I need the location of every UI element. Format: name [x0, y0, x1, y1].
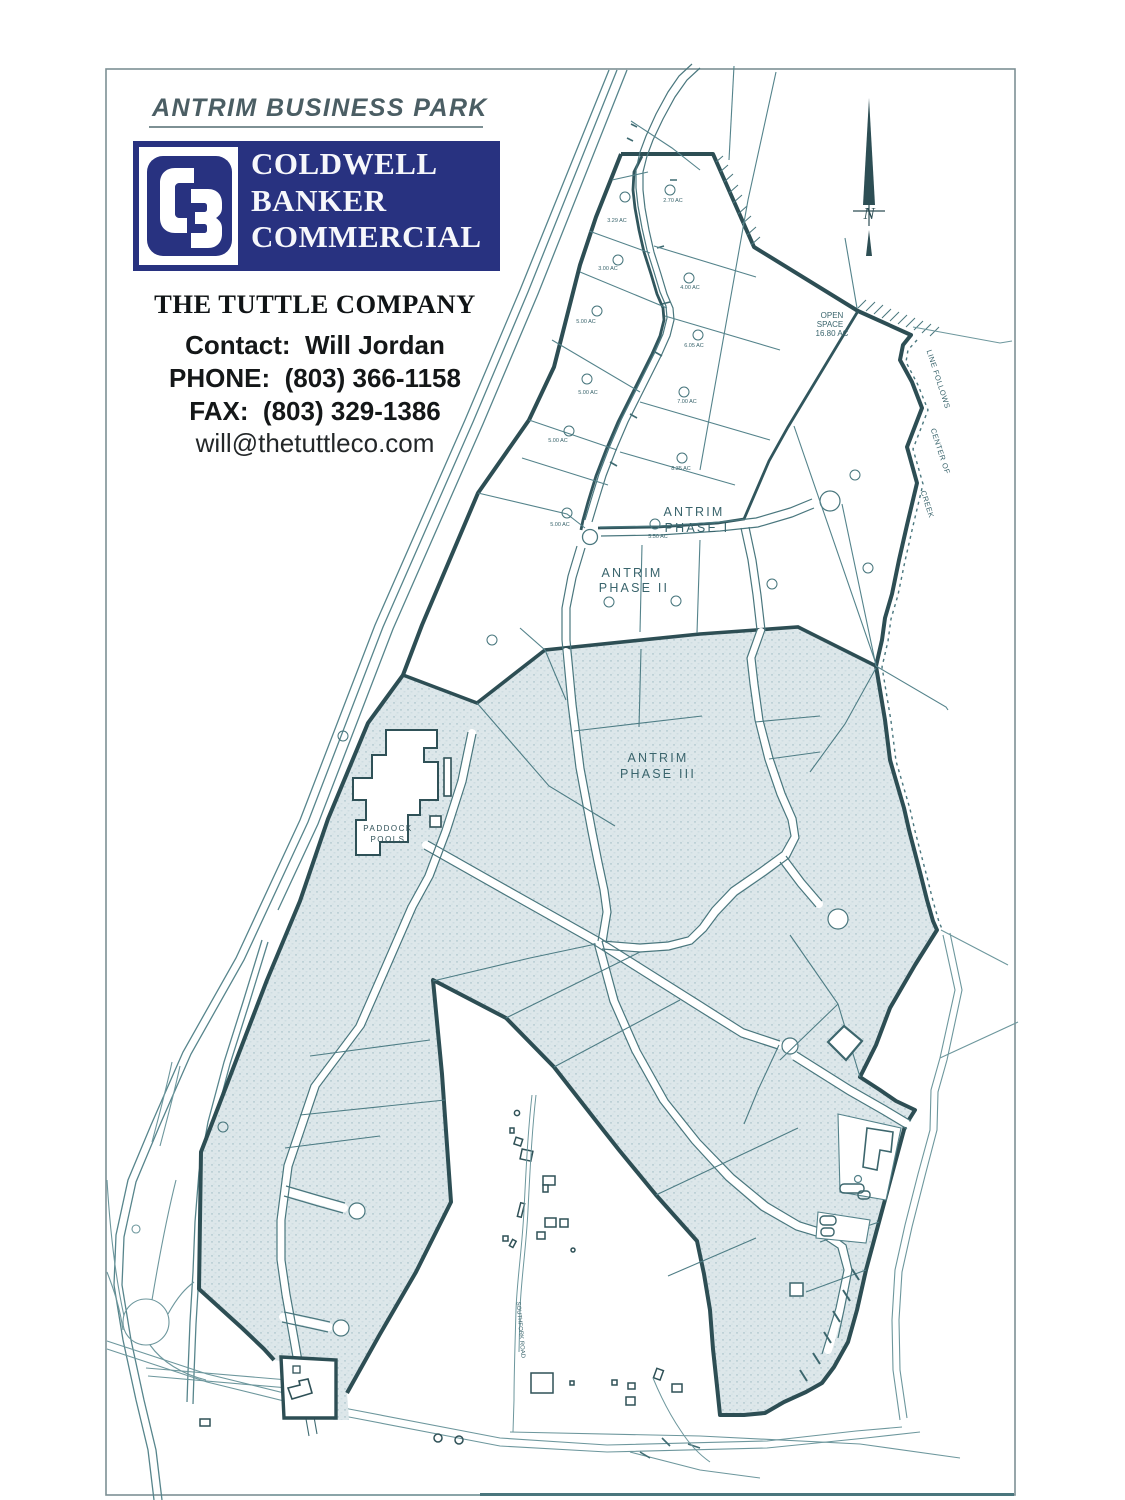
svg-text:SOUTHFORK ROAD: SOUTHFORK ROAD [515, 1301, 526, 1359]
svg-text:PHASE I: PHASE I [665, 521, 730, 535]
svg-text:6.05 AC: 6.05 AC [684, 343, 704, 349]
svg-text:PADDOCK: PADDOCK [363, 824, 412, 833]
svg-text:LINE FOLLOWS: LINE FOLLOWS [925, 349, 953, 410]
svg-text:2.70 AC: 2.70 AC [663, 198, 683, 204]
svg-text:7.00 AC: 7.00 AC [677, 399, 697, 405]
svg-text:3.29 AC: 3.29 AC [607, 218, 627, 224]
svg-text:CENTER OF: CENTER OF [929, 427, 952, 475]
svg-text:PHASE III: PHASE III [620, 767, 696, 781]
svg-text:POOLS: POOLS [370, 835, 405, 844]
svg-text:OPEN: OPEN [821, 311, 844, 320]
svg-text:5.50 AC: 5.50 AC [648, 534, 668, 540]
svg-text:4.00 AC: 4.00 AC [680, 285, 700, 291]
svg-text:16.80 AC: 16.80 AC [816, 329, 849, 338]
svg-text:ANTRIM: ANTRIM [601, 566, 662, 580]
svg-text:3.00 AC: 3.00 AC [598, 266, 618, 272]
svg-text:5.00 AC: 5.00 AC [576, 319, 596, 325]
svg-text:N: N [862, 204, 876, 223]
svg-text:5.00 AC: 5.00 AC [578, 390, 598, 396]
svg-text:PHASE II: PHASE II [599, 581, 669, 595]
svg-text:ANTRIM: ANTRIM [627, 751, 688, 765]
svg-text:5.00 AC: 5.00 AC [550, 522, 570, 528]
svg-text:SPACE: SPACE [817, 320, 844, 329]
svg-text:CREEK: CREEK [919, 489, 936, 519]
svg-text:5.00 AC: 5.00 AC [548, 438, 568, 444]
svg-text:ANTRIM: ANTRIM [663, 505, 724, 519]
svg-text:8.35 AC: 8.35 AC [671, 466, 691, 472]
